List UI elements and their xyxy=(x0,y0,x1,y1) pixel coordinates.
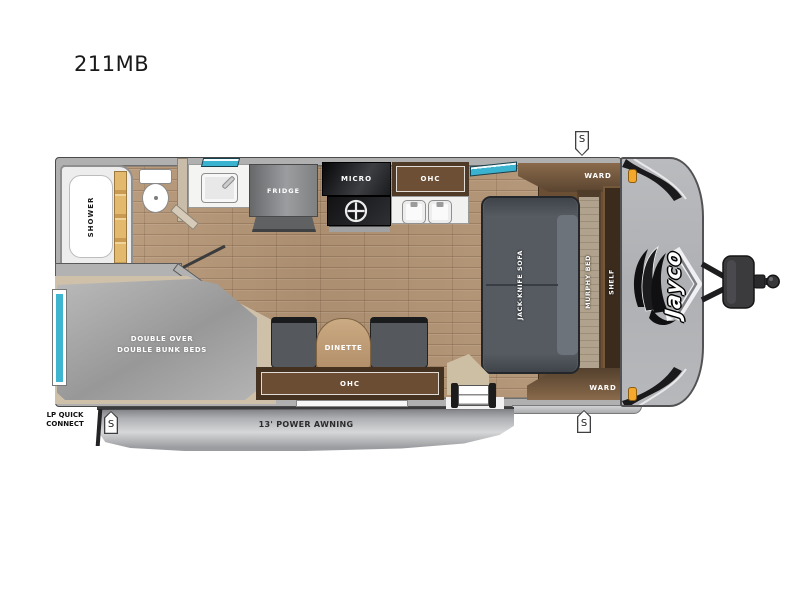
fridge-label: FRIDGE xyxy=(267,187,300,195)
toilet-icon xyxy=(139,169,172,184)
lp-label-line1: LP QUICK xyxy=(38,411,92,420)
entry-step-bracket xyxy=(451,383,458,408)
lp-label-line2: CONNECT xyxy=(38,420,92,429)
kitchen-ohc: OHC xyxy=(392,162,469,196)
kitchen-ohc-label: OHC xyxy=(421,175,441,183)
entry-steps xyxy=(458,385,489,406)
kitchen-sink-icon xyxy=(428,200,452,224)
kitchen-sink-icon xyxy=(402,200,426,224)
dinette-bench xyxy=(271,317,317,368)
sink-faucet-icon xyxy=(437,202,444,207)
shower-label: SHOWER xyxy=(87,172,99,262)
dinette-label: DINETTE xyxy=(317,344,370,352)
bunk-label-line1: DOUBLE OVER xyxy=(82,334,242,345)
dinette-table: DINETTE xyxy=(316,318,371,368)
marker-light xyxy=(628,387,637,401)
lp-quick-connect-label: LP QUICK CONNECT xyxy=(38,411,92,429)
shelf-label: SHELF xyxy=(608,237,618,328)
front-cap: Jayco xyxy=(620,157,704,407)
speaker-badge-letter: S xyxy=(575,134,589,145)
marker-light xyxy=(628,169,637,183)
wardrobe-top-label: WARD xyxy=(575,172,621,180)
burner-icon xyxy=(343,198,369,224)
sink-faucet-icon xyxy=(411,202,418,207)
awning xyxy=(97,409,514,451)
dinette-ohc-label: OHC xyxy=(340,380,360,388)
jayco-logo: Jayco xyxy=(661,233,687,336)
microwave: MICRO xyxy=(322,162,391,196)
oven-front xyxy=(329,226,390,232)
toilet-flush-dot xyxy=(154,196,158,200)
entry-step-bracket xyxy=(489,383,496,408)
speaker-badge-letter: S xyxy=(577,418,591,429)
bath-window xyxy=(201,158,240,167)
dinette-ohc: OHC xyxy=(256,367,444,400)
kitchen-ohc-panel: OHC xyxy=(396,166,465,192)
hitch-icon xyxy=(698,248,782,318)
floorplan-page: 211MB SHOWER FRIDGE MICRO OHC WARD xyxy=(0,0,800,600)
hitch-ball-icon xyxy=(767,275,779,287)
sofa-backrest xyxy=(557,215,578,355)
shower-door xyxy=(114,171,127,264)
floorplan-model-title: 211MB xyxy=(74,52,149,76)
dinette-bench xyxy=(370,317,428,368)
fridge: FRIDGE xyxy=(249,164,318,217)
rear-window-strip xyxy=(296,400,408,407)
micro-label: MICRO xyxy=(341,175,372,183)
bunk-beds-label: DOUBLE OVER DOUBLE BUNK BEDS xyxy=(82,334,242,356)
speaker-badge-letter: S xyxy=(104,419,118,430)
dinette-ohc-panel: OHC xyxy=(261,372,439,395)
speaker-badge: S xyxy=(575,131,589,156)
sofa-armrest xyxy=(484,353,577,372)
bunk-label-line2: DOUBLE BUNK BEDS xyxy=(82,345,242,356)
bunk-window xyxy=(52,289,67,386)
murphy-bed-label: MURPHY BED xyxy=(584,227,594,337)
bunk-window-glass xyxy=(56,294,63,382)
awning-label: 13' POWER AWNING xyxy=(206,420,406,429)
fridge-base xyxy=(252,217,316,232)
sofa-label: JACK-KNIFE SOFA xyxy=(516,205,526,365)
